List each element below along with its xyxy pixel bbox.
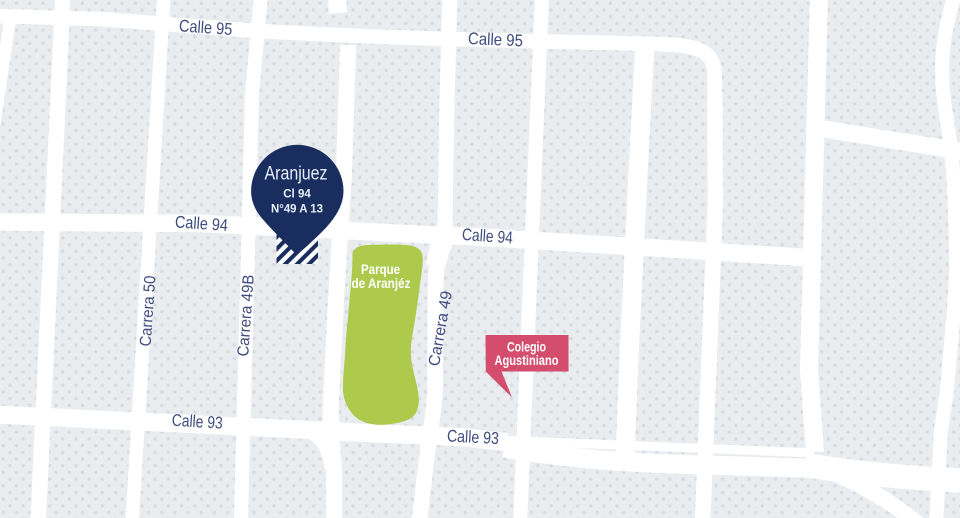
svg-text:Calle 94: Calle 94	[174, 212, 228, 235]
svg-text:de Aranjéz: de Aranjéz	[352, 276, 411, 291]
svg-text:Parque: Parque	[361, 262, 400, 277]
svg-text:Agustiniano: Agustiniano	[495, 353, 559, 368]
svg-text:Calle 95: Calle 95	[178, 16, 233, 39]
svg-text:Aranjuez: Aranjuez	[265, 164, 328, 185]
svg-text:Calle 95: Calle 95	[468, 29, 524, 50]
svg-text:Calle 93: Calle 93	[447, 426, 500, 448]
svg-text:Cl 94: Cl 94	[283, 187, 311, 201]
svg-text:N°49 A 13: N°49 A 13	[271, 202, 323, 216]
svg-text:Calle 93: Calle 93	[171, 411, 223, 433]
svg-text:Calle 94: Calle 94	[461, 225, 513, 248]
